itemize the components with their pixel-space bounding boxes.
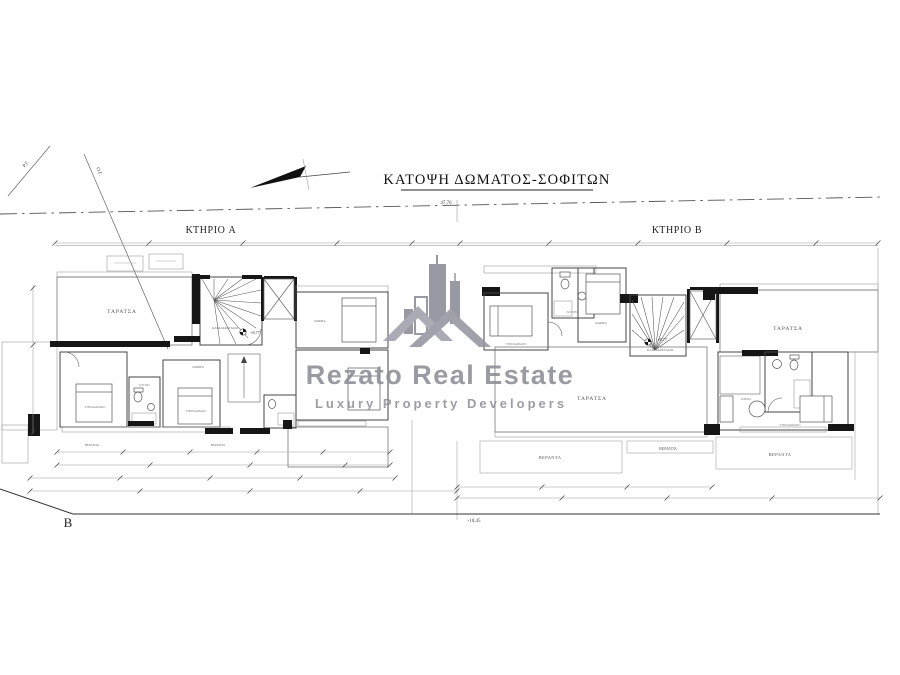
bedroom-b1-label: ΥΠΝΟΔΩΜΑΤΙΟ [506, 343, 527, 346]
road-level-label: -10,45 [468, 519, 481, 524]
attic-a1-label: ΣΟΦΙΤΑ [192, 365, 204, 369]
roof-annotation-boxes [107, 254, 183, 271]
bedroom-b2-label: ΥΠΝΟΔΩΜΑΤΙΟ [780, 424, 801, 427]
watermark-logo-icon [383, 255, 491, 347]
level-marker-a [240, 329, 246, 335]
attic-b2-label: ΣΟΦΙΤΑ [741, 398, 751, 401]
stair-b [632, 297, 684, 350]
stairwell-a-label: ΚΛΙΜΑΚΟΣΤΑΣΙΟ [212, 326, 239, 330]
floor-plan-drawing: Ρ.Γ. Ο.Γ. 47,76 ΚΑΤΟΨΗ ΔΩΜΑΤΟΣ-ΣΟΦΙΤΩΝ Κ… [0, 0, 900, 675]
boundary-label-1: Ρ.Γ. [22, 160, 30, 169]
veranda-b2-label: ΒΕΡΑΝΤΑ [659, 446, 677, 451]
stair-level-a: +8,77 [250, 330, 260, 336]
terrace-a-label: ΤΑΡΑΤΣΑ [107, 309, 137, 315]
watermark-name: Rezato Real Estate [306, 360, 575, 390]
boundary-label-2: Ο.Γ. [94, 167, 102, 177]
veranda-a1-label: ΒΕΡΑΝΤΑ [85, 443, 100, 447]
terrace-b1-label: ΤΑΡΑΤΣΑ [773, 326, 803, 332]
bathroom-a-label: ΛΟΥΤΡΟ [138, 384, 149, 387]
veranda-b3-label: ΒΕΡΑΝΤΑ [769, 452, 792, 457]
stair-a [202, 279, 261, 345]
veranda-a2-label: ΒΕΡΑΝΤΑ [211, 443, 226, 447]
point-b-label: B [64, 515, 73, 530]
level-marker-b [645, 339, 651, 345]
plot-baseline: B -10,45 [0, 489, 880, 530]
bathroom-b1-label: ΛΟΥΤΡΟ [566, 311, 577, 314]
bedroom-a2-label: ΥΠΝΟΔΩΜΑΤΙΟ [186, 410, 207, 413]
watermark-tagline: Luxury Property Developers [315, 396, 567, 411]
building-a-label: ΚΤΗΡΙΟ A [186, 225, 237, 236]
north-arrow-icon [250, 159, 350, 190]
veranda-b1-label: ΒΕΡΑΝΤΑ [539, 455, 562, 460]
stairwell-b-label: ΚΛΙΜΑΚΟΣΤΑΣΙΟ [647, 348, 674, 352]
drawing-title: ΚΑΤΟΨΗ ΔΩΜΑΤΟΣ-ΣΟΦΙΤΩΝ [383, 172, 610, 188]
plot-width-label: 47,76 [440, 201, 452, 206]
bedroom-a1-label: ΥΠΝΟΔΩΜΑΤΙΟ [85, 406, 106, 409]
elevator-a [261, 276, 297, 321]
terrace-b2-label: ΤΑΡΑΤΣΑ [577, 396, 607, 402]
top-dimension-line [53, 241, 881, 246]
attic-a2-label: ΣΟΦΙΤΑ [314, 319, 326, 323]
attic-b1-label: ΣΟΦΙΤΑ [595, 321, 607, 325]
floor-plan-svg: Ρ.Γ. Ο.Γ. 47,76 ΚΑΤΟΨΗ ΔΩΜΑΤΟΣ-ΣΟΦΙΤΩΝ Κ… [0, 0, 900, 675]
building-b-label: ΚΤΗΡΙΟ B [652, 225, 702, 236]
